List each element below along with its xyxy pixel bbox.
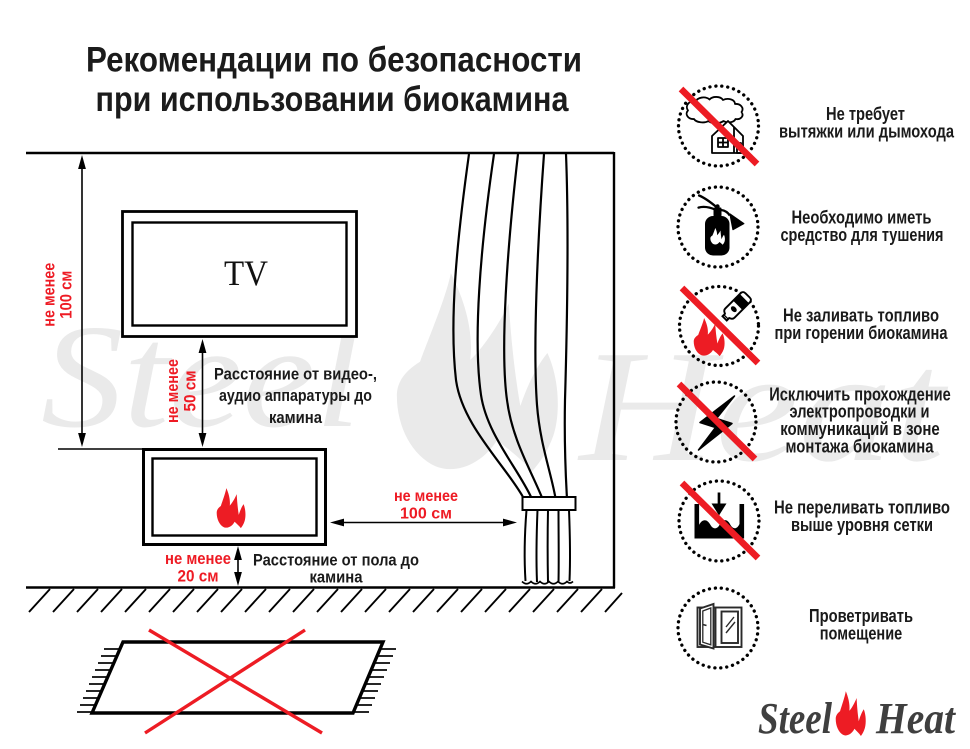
svg-text:Steel: Steel — [758, 694, 833, 743]
svg-text:камина: камина — [269, 409, 323, 427]
svg-text:Расстояние от пола до: Расстояние от пола до — [253, 551, 419, 569]
svg-text:не менее: не менее — [164, 359, 182, 423]
svg-text:Рекомендации по безопасности: Рекомендации по безопасности — [86, 40, 582, 80]
svg-text:монтажа биокамина: монтажа биокамина — [786, 437, 935, 457]
svg-text:не менее: не менее — [40, 263, 58, 327]
svg-text:аудио аппаратуры до: аудио аппаратуры до — [219, 387, 372, 405]
svg-text:при использовании биокамина: при использовании биокамина — [96, 79, 569, 119]
svg-text:камина: камина — [310, 568, 364, 586]
svg-text:100 см: 100 см — [58, 271, 76, 319]
svg-text:100 см: 100 см — [400, 505, 452, 522]
svg-text:Расстояние от видео-,: Расстояние от видео-, — [214, 366, 377, 384]
svg-text:средство для тушения: средство для тушения — [781, 225, 944, 245]
svg-text:20 см: 20 см — [178, 567, 219, 585]
svg-text:помещение: помещение — [820, 623, 903, 643]
svg-text:при горении биокамина: при горении биокамина — [775, 323, 949, 343]
svg-text:50 см: 50 см — [181, 371, 199, 412]
svg-text:не менее: не менее — [165, 550, 231, 568]
svg-text:выше уровня сетки: выше уровня сетки — [791, 515, 933, 535]
svg-text:не менее: не менее — [394, 488, 458, 505]
svg-text:вытяжки или дымохода: вытяжки или дымохода — [779, 121, 955, 141]
svg-text:Heat: Heat — [875, 694, 956, 743]
svg-text:TV: TV — [224, 253, 268, 293]
